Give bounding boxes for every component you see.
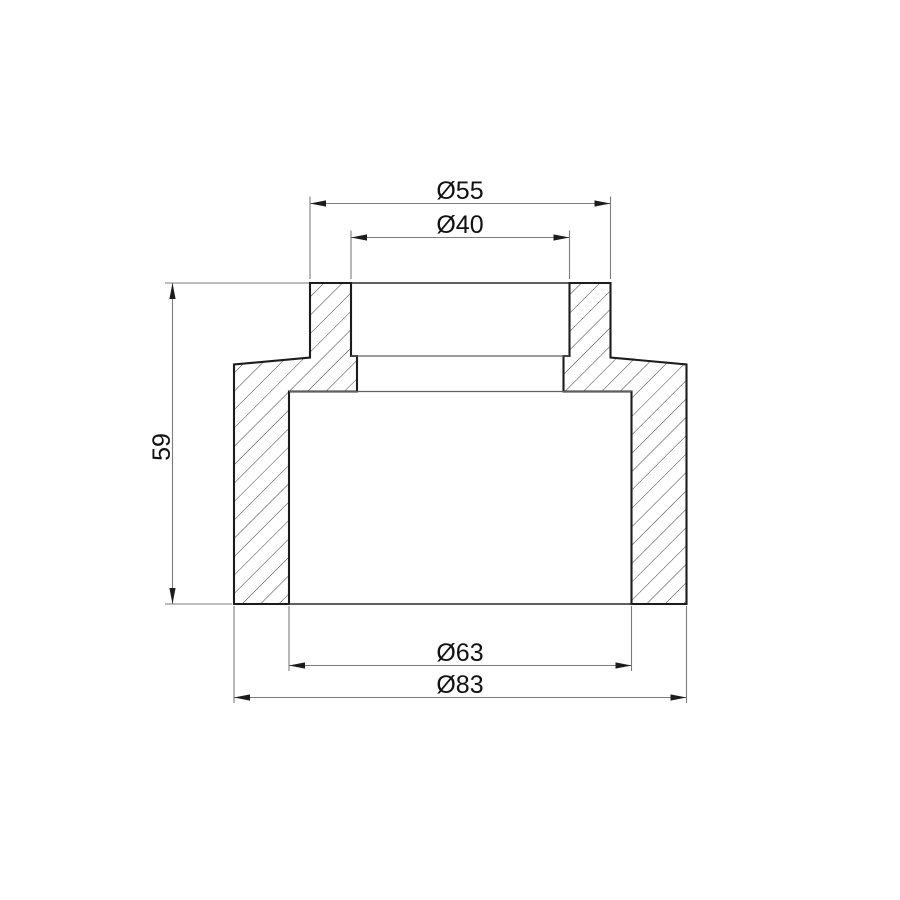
dimension-label: Ø83 bbox=[436, 671, 483, 699]
arrowhead-down bbox=[169, 588, 175, 604]
part-left-wall bbox=[234, 283, 357, 604]
dimension-label: Ø63 bbox=[436, 639, 483, 667]
dimension-label: 59 bbox=[148, 433, 176, 461]
part-section bbox=[234, 283, 687, 604]
dimension-bottom-inner-diameter: Ø63 bbox=[289, 606, 632, 671]
arrowhead-left bbox=[351, 234, 367, 240]
arrowhead-up bbox=[169, 283, 175, 299]
dimension-top-inner-diameter: Ø40 bbox=[351, 211, 570, 279]
arrowhead-right bbox=[616, 662, 632, 668]
arrowhead-left bbox=[310, 200, 326, 206]
arrowhead-left bbox=[289, 662, 305, 668]
arrowhead-right bbox=[554, 234, 570, 240]
dimension-label: Ø55 bbox=[436, 177, 483, 205]
arrowhead-right bbox=[595, 200, 611, 206]
technical-drawing: Ø55 Ø40 59 Ø63 bbox=[0, 0, 900, 900]
drawing-canvas: Ø55 Ø40 59 Ø63 bbox=[0, 0, 900, 900]
part-right-wall bbox=[564, 283, 687, 604]
arrowhead-right bbox=[671, 694, 687, 700]
dimension-label: Ø40 bbox=[436, 211, 483, 239]
arrowhead-left bbox=[234, 694, 250, 700]
